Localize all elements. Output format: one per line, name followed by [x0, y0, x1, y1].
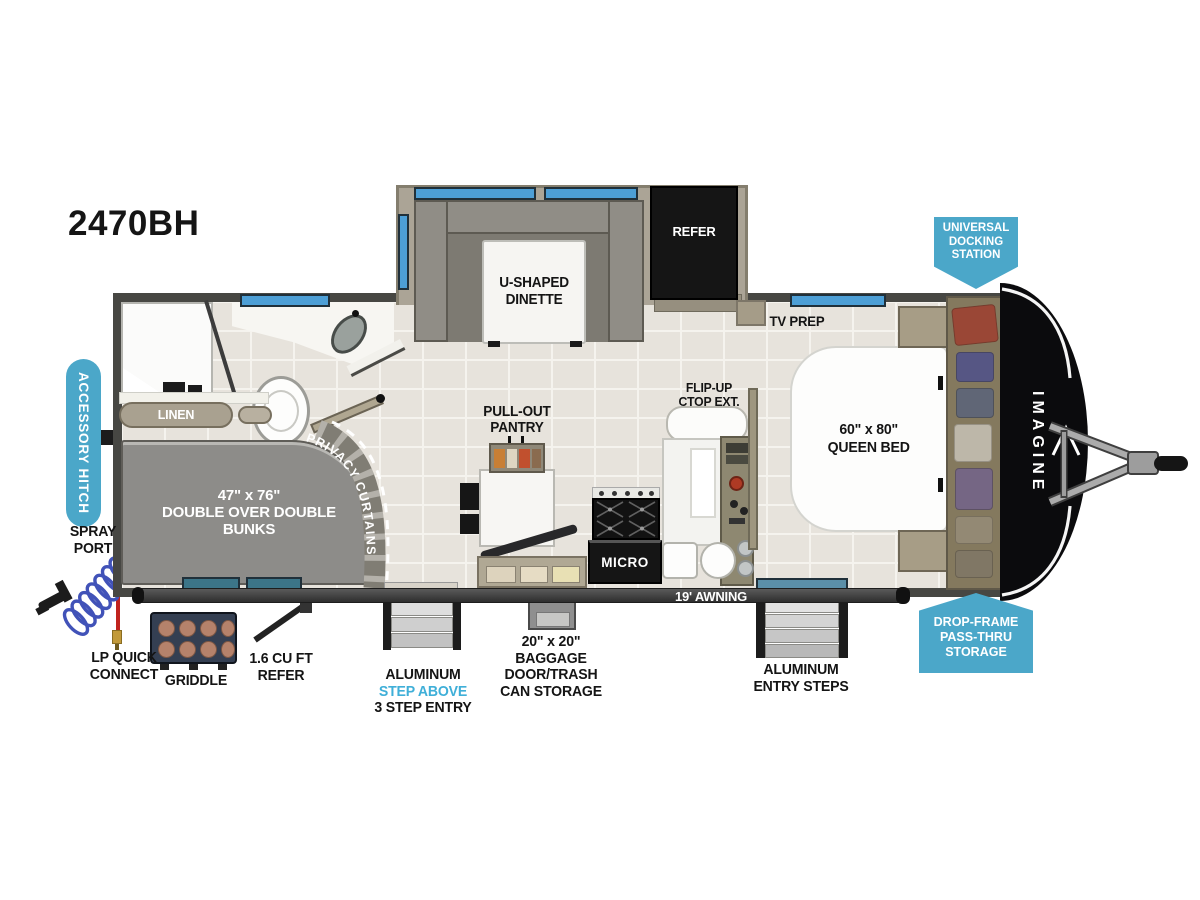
entry-steps-label: ALUMINUM STEP ABOVE 3 STEP ENTRY [367, 667, 480, 717]
universal-docking-badge: UNIVERSAL DOCKING STATION [934, 217, 1018, 289]
entry-steps-label-line2: STEP ABOVE [367, 684, 480, 701]
accessory-hitch-badge: ACCESSORY HITCH [66, 359, 101, 527]
pull-out-pantry-label: PULL-OUT PANTRY [461, 405, 574, 437]
tv-prep-label: TV PREP [759, 314, 834, 329]
griddle-label: GRIDDLE [149, 673, 243, 690]
flip-up-ctop-label: FLIP-UP CTOP EXT. [671, 381, 746, 410]
baggage-storage-label: 20" x 20" BAGGAGE DOOR/TRASH CAN STORAGE [495, 634, 608, 700]
floorplan-canvas: LINEN 47" x 76" DOUBLE OVER DOUBLE BUNKS… [0, 0, 1200, 900]
entry-steps-label-line1: ALUMINUM [367, 667, 480, 684]
accessory-hitch-label: ACCESSORY HITCH [76, 372, 91, 514]
labels-layer: 2470BH UNIVERSAL DOCKING STATION DROP-FR… [0, 0, 1200, 900]
bedroom-entry-steps-label: ALUMINUM ENTRY STEPS [745, 662, 858, 695]
model-number: 2470BH [68, 204, 199, 244]
outside-refer-label: 1.6 CU FT REFER [234, 651, 328, 684]
entry-steps-label-line3: 3 STEP ENTRY [367, 700, 480, 717]
drop-frame-storage-badge: DROP-FRAME PASS-THRU STORAGE [919, 593, 1033, 673]
spray-port-label: SPRAY PORT [55, 524, 130, 557]
